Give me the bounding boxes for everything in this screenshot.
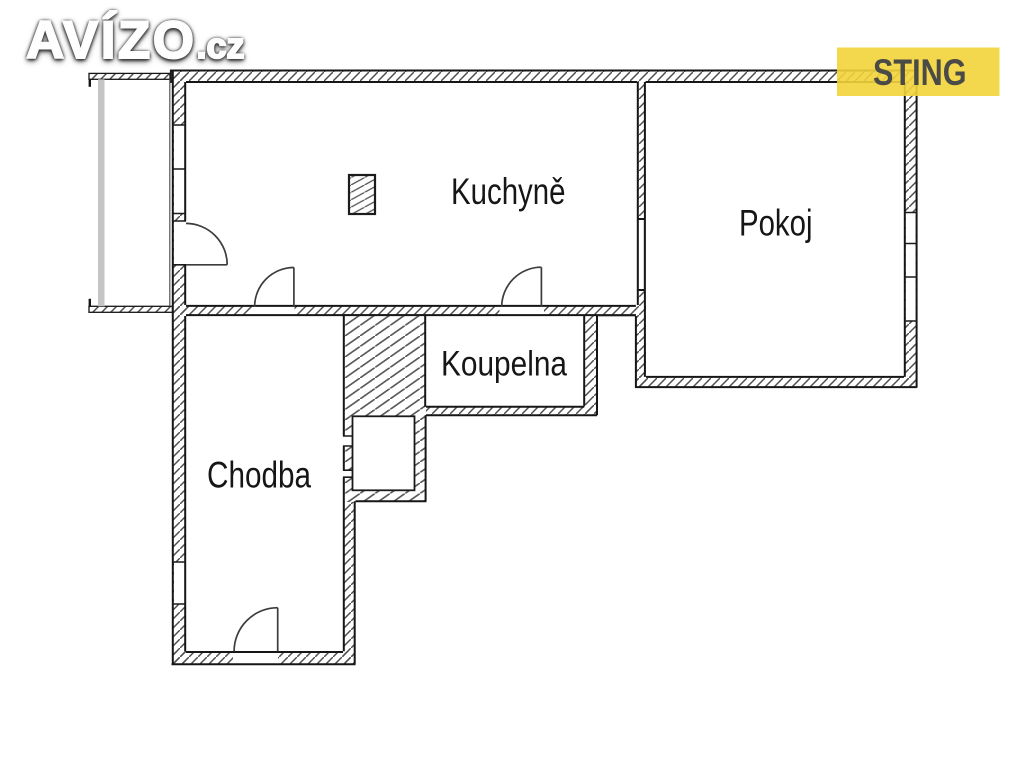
svg-text:Koupelna: Koupelna <box>441 343 567 383</box>
svg-text:Kuchyně: Kuchyně <box>451 171 566 212</box>
svg-text:Chodba: Chodba <box>207 455 311 496</box>
svg-text:STING: STING <box>873 51 967 93</box>
svg-text:Pokoj: Pokoj <box>739 202 813 243</box>
